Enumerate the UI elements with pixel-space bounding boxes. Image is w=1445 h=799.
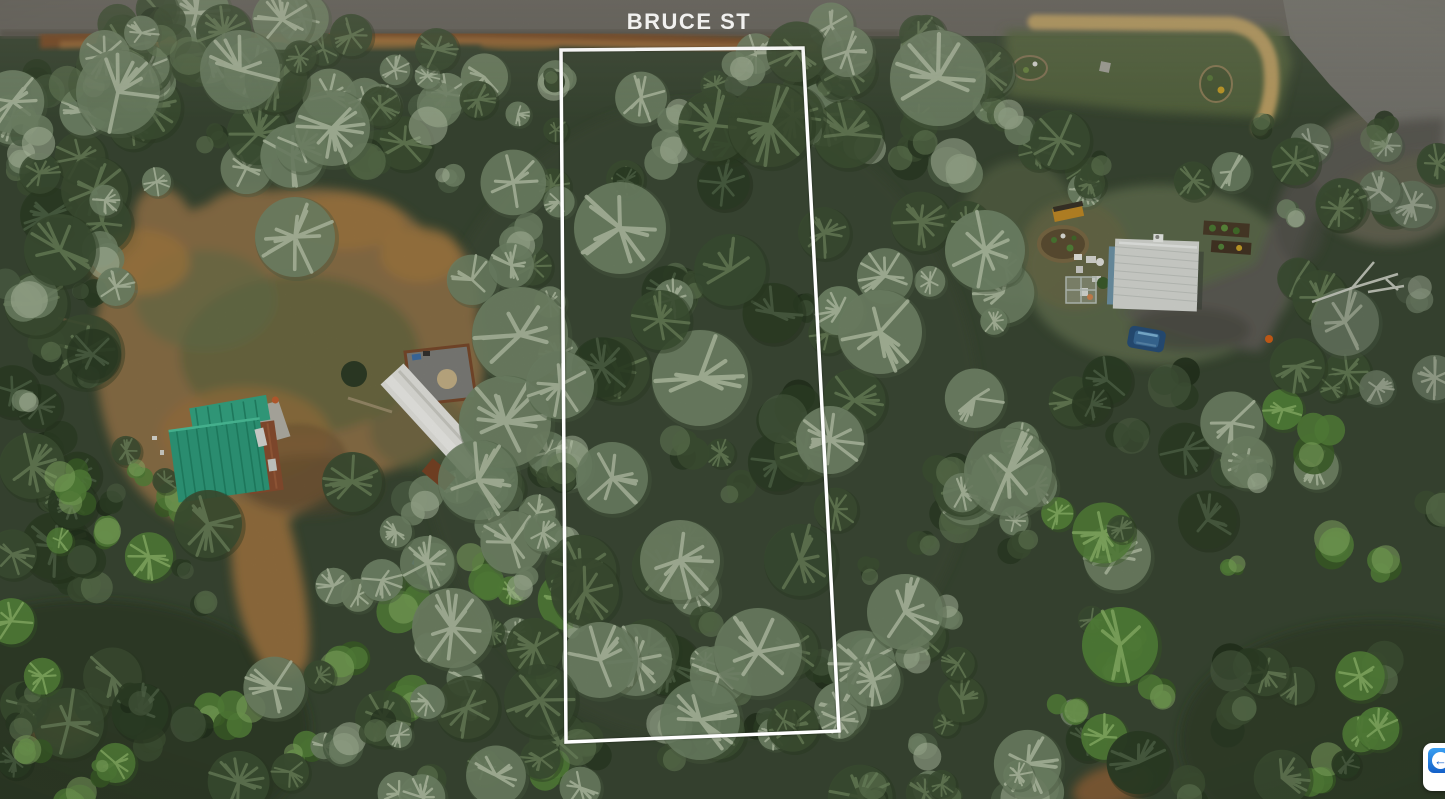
aerial-scene: BRUCE ST <box>0 0 1445 799</box>
grain-light <box>0 0 1445 799</box>
teamviewer-widget[interactable]: ← <box>1423 743 1445 791</box>
street-label: BRUCE ST <box>627 9 751 34</box>
arrow-left-icon: ← <box>1432 752 1445 769</box>
teamviewer-icon: ← <box>1428 748 1445 773</box>
aerial-photo: BRUCE ST ← <box>0 0 1445 799</box>
